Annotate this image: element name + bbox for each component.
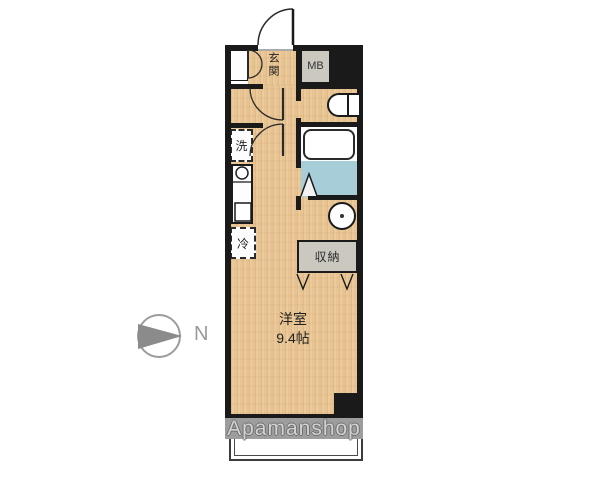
entrance-label: 玄関 bbox=[265, 52, 281, 78]
closet-open-door-icons bbox=[297, 274, 353, 289]
toilet-icon bbox=[328, 94, 360, 116]
room-door-swing-icon bbox=[250, 124, 283, 156]
stove-burner-icon bbox=[232, 167, 252, 182]
compass-icon bbox=[138, 315, 182, 357]
room-label: 洋室 9.4帖 bbox=[248, 310, 338, 348]
plan-linework bbox=[0, 0, 600, 480]
watermark-text: Apamanshop bbox=[227, 417, 361, 441]
cabinet-door-arcs-icon bbox=[248, 50, 262, 78]
folding-door-icon bbox=[301, 174, 317, 196]
hall-door-swing-icon bbox=[250, 88, 283, 120]
watermark-band: Apamanshop bbox=[225, 418, 363, 439]
room-name: 洋室 bbox=[248, 310, 338, 329]
floorplan-image: MB 収納 洗 冷 bbox=[0, 0, 600, 480]
entrance-door-swing-icon bbox=[258, 9, 293, 45]
room-size: 9.4帖 bbox=[248, 329, 338, 348]
washbasin-icon bbox=[329, 203, 355, 229]
sink-icon bbox=[235, 203, 251, 221]
compass-north-label: N bbox=[194, 323, 208, 346]
